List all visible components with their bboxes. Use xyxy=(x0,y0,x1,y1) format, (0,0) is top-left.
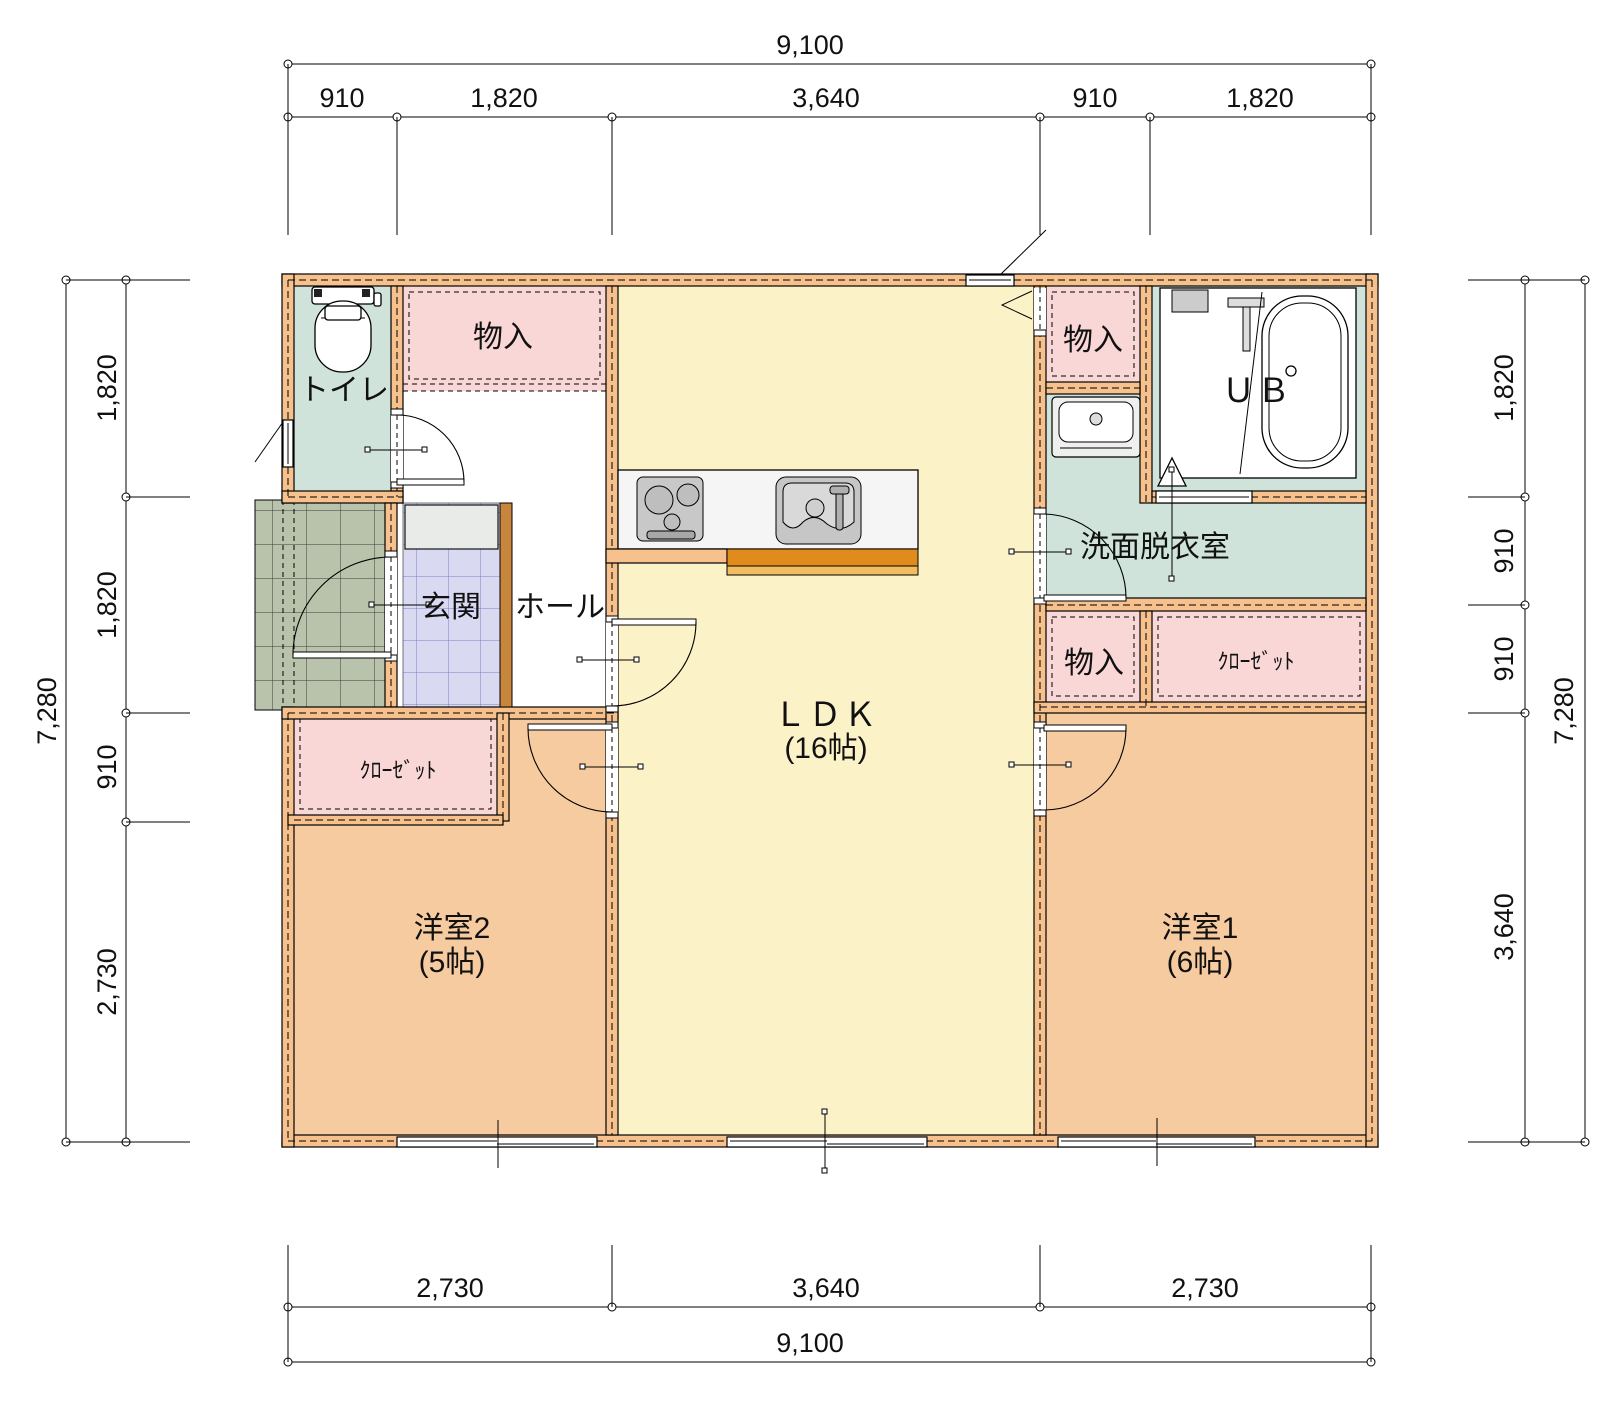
kitchen-counter xyxy=(606,470,918,575)
dim-right-seg: 1,820 xyxy=(1489,354,1519,422)
dimension-bottom: 2,730 3,640 2,730 9,100 xyxy=(284,1245,1375,1366)
dim-right-seg: 3,640 xyxy=(1489,893,1519,961)
dim-top-total: 9,100 xyxy=(776,30,844,60)
dim-right-seg: 910 xyxy=(1489,528,1519,573)
window-toilet-west xyxy=(255,420,293,467)
vent-indicator-line xyxy=(1000,230,1046,275)
dim-left-seg: 2,730 xyxy=(92,948,122,1016)
dim-top-seg: 1,820 xyxy=(1226,83,1294,113)
shoe-cabinet xyxy=(405,505,498,549)
room-label-ldk: ＬＤＫ xyxy=(774,696,879,733)
washbasin-icon xyxy=(1052,397,1140,457)
dim-top-seg: 3,640 xyxy=(792,83,860,113)
room-size-ldk: (16帖) xyxy=(784,732,867,765)
wall-bath-west xyxy=(1140,286,1152,503)
room-label-storage-top-left: 物入 xyxy=(473,321,533,354)
casement-indicator-line xyxy=(255,422,283,462)
dim-bottom-seg: 3,640 xyxy=(792,1273,860,1303)
dim-top-seg: 1,820 xyxy=(470,83,538,113)
room-label-storage-mid-right: 物入 xyxy=(1064,647,1124,680)
dim-top-seg: 910 xyxy=(1072,83,1117,113)
dim-left-seg: 1,820 xyxy=(92,571,122,639)
window-ldk-south xyxy=(727,1137,927,1147)
window-bedroom2-south xyxy=(397,1137,597,1147)
dim-left-total: 7,280 xyxy=(32,677,62,745)
dim-left-seg: 910 xyxy=(92,744,122,789)
bath-counter-icon xyxy=(1172,290,1208,312)
floor-plan-canvas: トイレ 物入 玄関 ホール ＬＤＫ (16帖) 物入 ＵＢ 洗面脱衣室 物入 ｸ… xyxy=(0,0,1623,1398)
room-label-bedroom1: 洋室1 xyxy=(1162,912,1239,945)
dim-bottom-total: 9,100 xyxy=(776,1328,844,1358)
entrance-step-edge xyxy=(500,503,512,707)
dim-right-total: 7,280 xyxy=(1549,677,1579,745)
kitchen-half-wall xyxy=(606,549,727,563)
room-size-bedroom2: (5帖) xyxy=(419,946,486,979)
room-label-hall: ホール xyxy=(515,591,605,624)
dim-top-seg: 910 xyxy=(319,83,364,113)
room-size-bedroom1: (6帖) xyxy=(1167,946,1234,979)
room-label-washroom: 洗面脱衣室 xyxy=(1080,531,1230,564)
room-label-closet-right: ｸﾛｰｾﾞｯﾄ xyxy=(1217,649,1294,674)
room-label-storage-top-right: 物入 xyxy=(1063,324,1123,357)
dimension-top: 9,100 910 1,820 3,640 910 1,820 xyxy=(284,30,1375,235)
kitchen-counter-bar-edge xyxy=(727,566,918,575)
room-label-toilet: トイレ xyxy=(299,374,389,407)
room-label-closet-left: ｸﾛｰｾﾞｯﾄ xyxy=(359,758,436,783)
dim-left-seg: 1,820 xyxy=(92,354,122,422)
dim-bottom-seg: 2,730 xyxy=(416,1273,484,1303)
dimension-left: 7,280 1,820 1,820 910 2,730 xyxy=(32,276,190,1146)
room-label-entrance: 玄関 xyxy=(421,591,481,624)
dim-bottom-seg: 2,730 xyxy=(1171,1273,1239,1303)
kitchen-counter-bar xyxy=(727,549,918,566)
dim-right-seg: 910 xyxy=(1489,636,1519,681)
room-label-unit-bath: ＵＢ xyxy=(1222,372,1292,409)
dimension-right: 1,820 910 910 3,640 7,280 xyxy=(1468,276,1589,1146)
room-label-bedroom2: 洋室2 xyxy=(414,912,491,945)
sink-icon xyxy=(776,477,861,544)
stove-icon xyxy=(637,477,703,541)
floor-plan-drawing: トイレ 物入 玄関 ホール ＬＤＫ (16帖) 物入 ＵＢ 洗面脱衣室 物入 ｸ… xyxy=(0,0,1623,1398)
